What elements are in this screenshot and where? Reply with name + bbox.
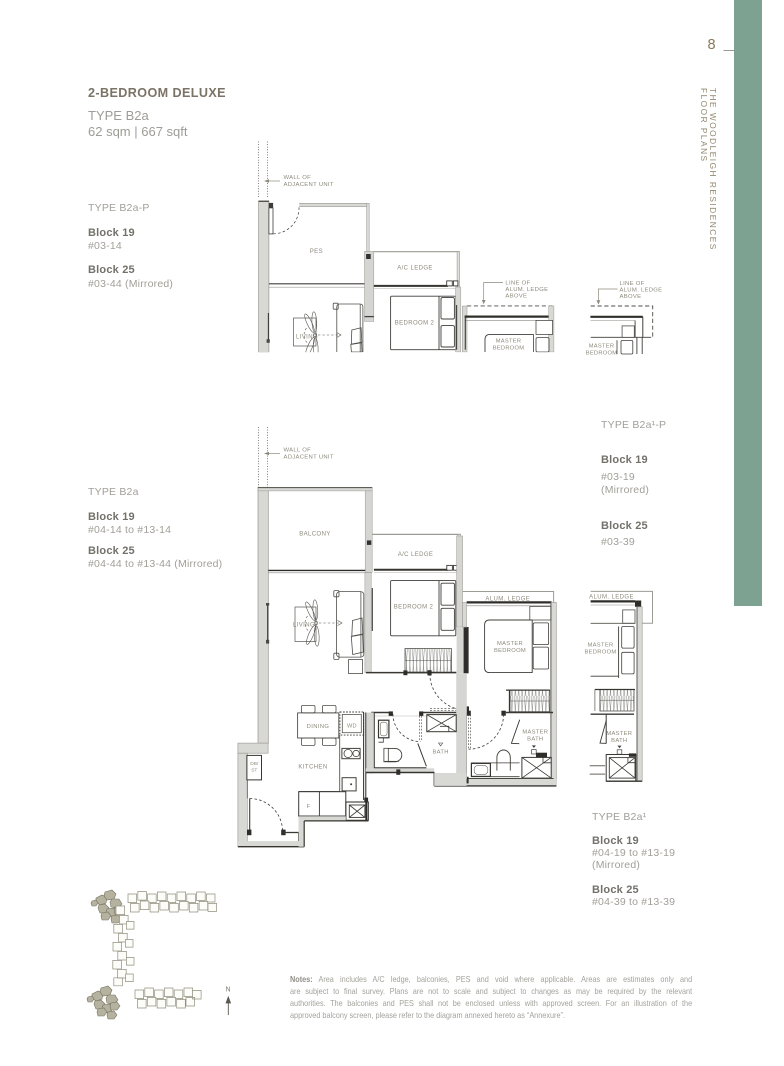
svg-text:MASTER: MASTER — [606, 731, 632, 737]
svg-text:LIVING: LIVING — [293, 623, 315, 629]
svg-text:MASTER: MASTER — [497, 641, 523, 647]
svg-text:BEDROOM: BEDROOM — [494, 648, 526, 654]
svg-text:DINING: DINING — [307, 724, 330, 730]
svg-text:KITCHEN: KITCHEN — [298, 765, 327, 771]
svg-text:BEDROOM 2: BEDROOM 2 — [394, 605, 434, 611]
svg-text:BEDROOM: BEDROOM — [493, 346, 525, 352]
svg-text:WALL OF: WALL OF — [284, 448, 312, 454]
svg-text:ST: ST — [251, 768, 257, 774]
svg-text:BATH: BATH — [527, 737, 543, 743]
svg-text:WD: WD — [347, 724, 357, 730]
svg-text:F: F — [307, 804, 311, 810]
svg-text:ALUM. LEDGE: ALUM. LEDGE — [589, 595, 634, 601]
svg-text:BEDROOM: BEDROOM — [586, 351, 618, 357]
svg-text:ABOVE: ABOVE — [505, 294, 527, 300]
svg-text:MASTER: MASTER — [496, 339, 522, 345]
svg-text:N: N — [225, 987, 230, 994]
svg-text:LINE OF: LINE OF — [505, 281, 530, 287]
svg-text:ADJACENT UNIT: ADJACENT UNIT — [284, 182, 334, 188]
svg-text:ALUM. LEDGE: ALUM. LEDGE — [620, 288, 663, 294]
svg-text:ALUM. LEDGE: ALUM. LEDGE — [505, 287, 548, 293]
svg-text:BEDROOM: BEDROOM — [584, 649, 616, 655]
svg-text:BALCONY: BALCONY — [299, 532, 330, 538]
svg-text:PES: PES — [310, 249, 323, 255]
svg-text:A/C LEDGE: A/C LEDGE — [397, 265, 433, 271]
svg-text:MASTER: MASTER — [589, 344, 615, 350]
svg-text:MASTER: MASTER — [588, 642, 614, 648]
svg-text:ADJACENT UNIT: ADJACENT UNIT — [284, 455, 334, 461]
svg-text:MASTER: MASTER — [522, 730, 548, 736]
svg-text:BATH: BATH — [611, 738, 627, 744]
svg-text:DB/: DB/ — [250, 761, 259, 767]
svg-text:WALL OF: WALL OF — [284, 175, 312, 181]
svg-text:ABOVE: ABOVE — [620, 294, 642, 300]
svg-text:LINE OF: LINE OF — [620, 281, 645, 287]
svg-text:BATH: BATH — [432, 749, 448, 755]
svg-text:A/C LEDGE: A/C LEDGE — [398, 552, 434, 558]
svg-text:BEDROOM 2: BEDROOM 2 — [395, 321, 435, 327]
